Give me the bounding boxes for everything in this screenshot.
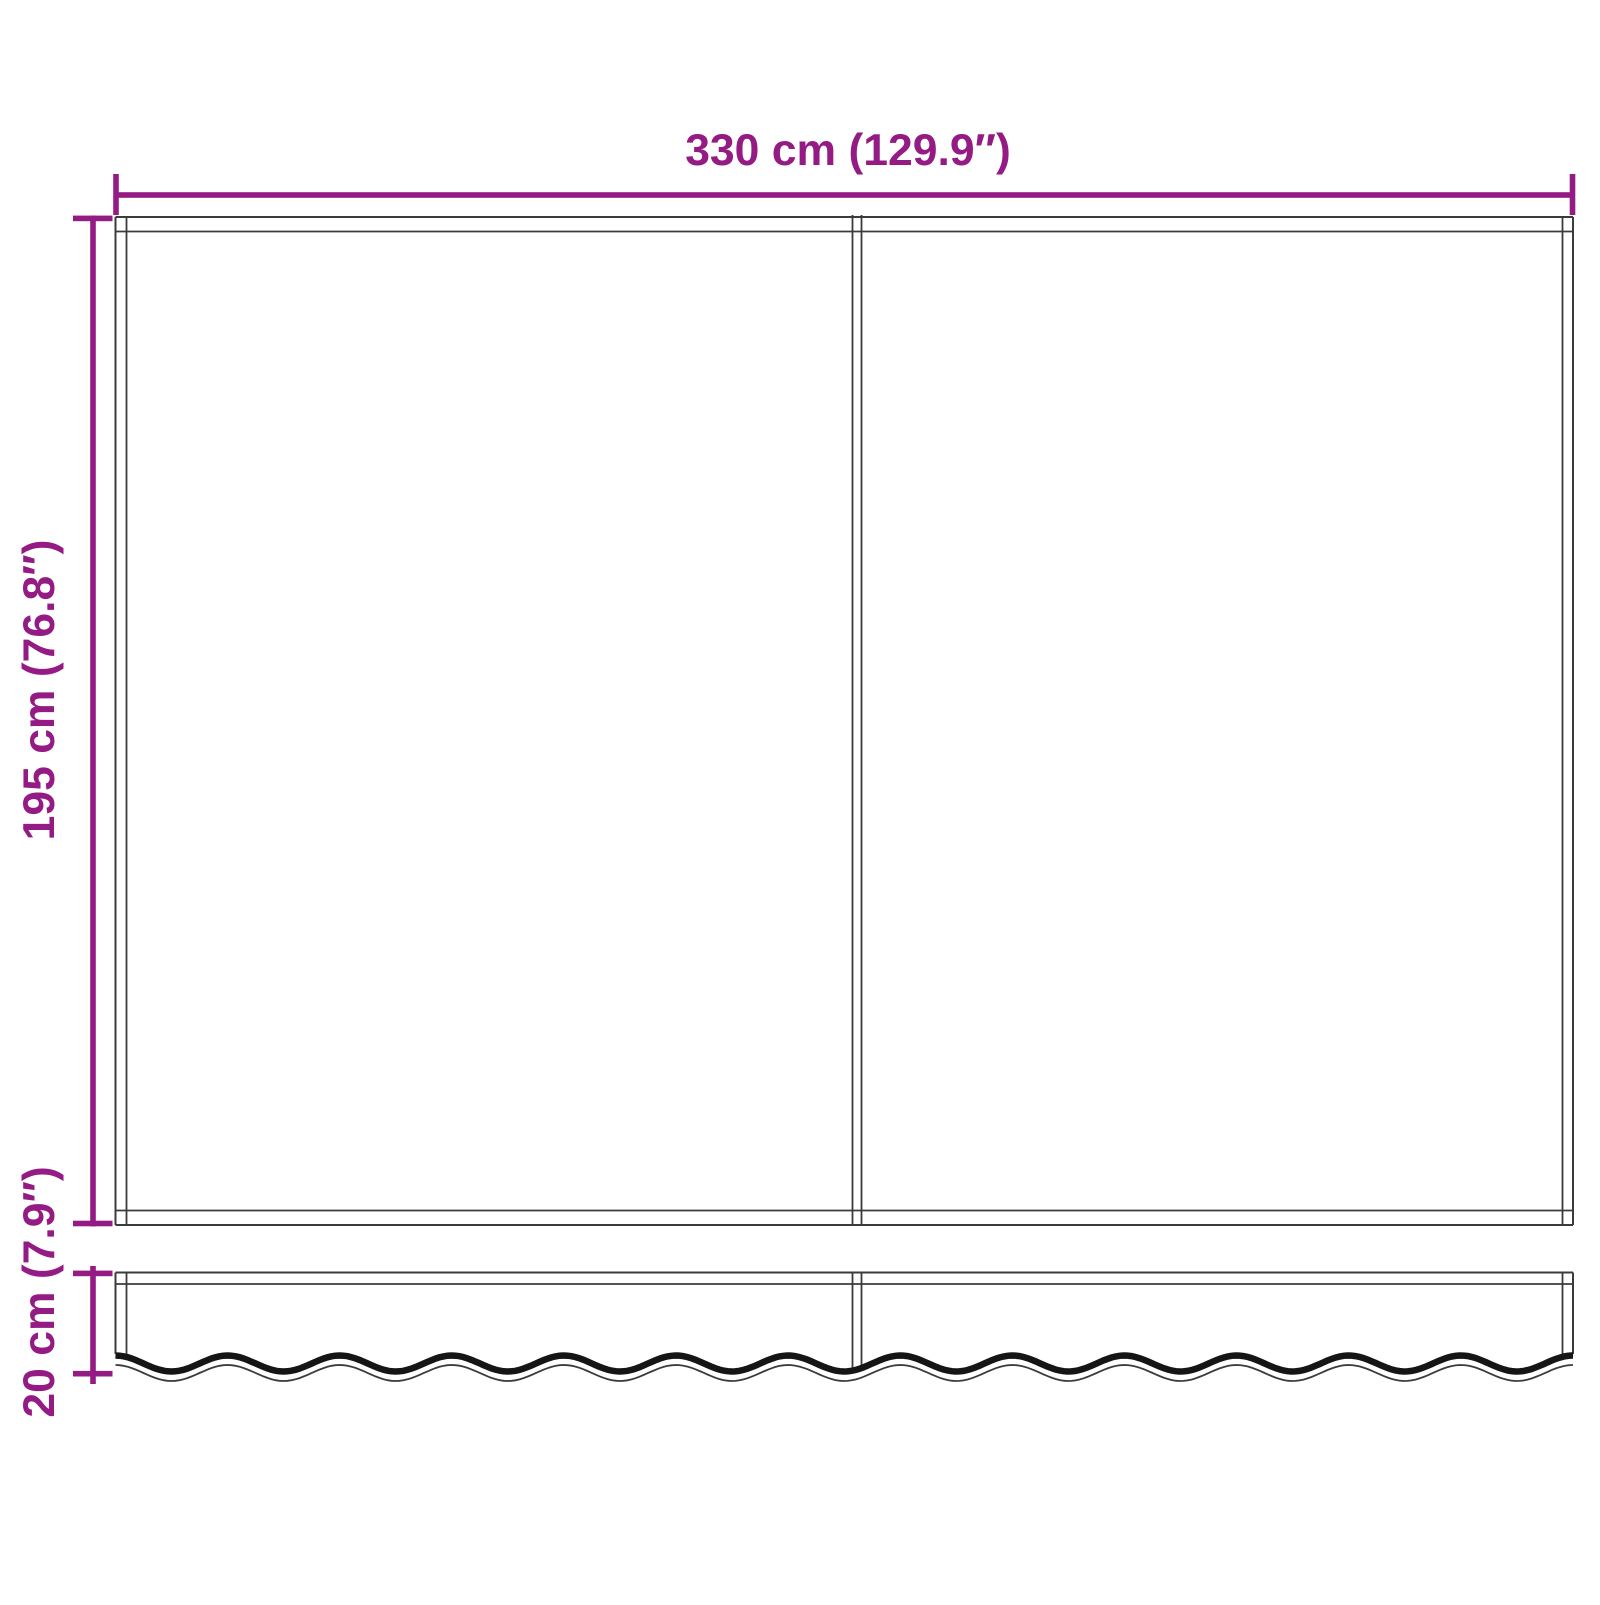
svg-text:195 cm (76.8″): 195 cm (76.8″) [15, 540, 64, 841]
svg-text:330 cm (129.9″): 330 cm (129.9″) [685, 126, 1011, 175]
svg-text:20 cm (7.9″): 20 cm (7.9″) [15, 1166, 64, 1417]
